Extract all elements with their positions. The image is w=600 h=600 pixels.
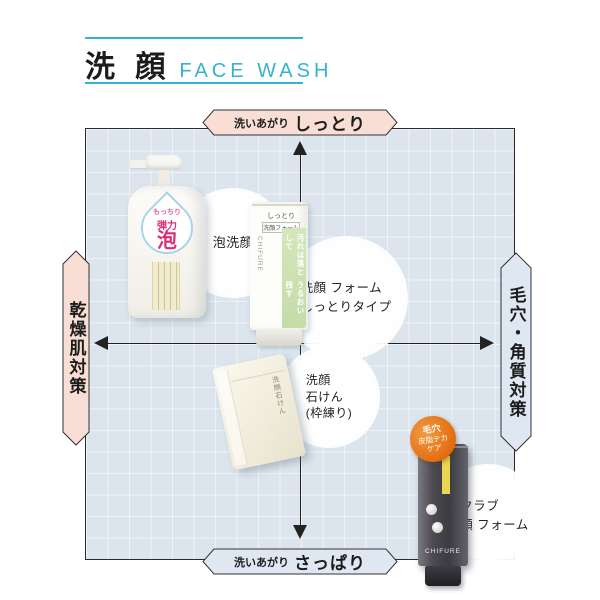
page-title-en: FACE WASH [179, 60, 332, 83]
axis-label-top: 洗いあがり しっとり [202, 109, 398, 136]
drop-label-small: もっちり [153, 207, 181, 217]
annotation-text: 洗顔 フォームしっとりタイプ [300, 279, 391, 317]
page-title: 洗 顔 FACE WASH [85, 42, 332, 86]
tube-top-text: しっとり [254, 211, 308, 221]
axis-label-bottom: 洗いあがり さっぱり [202, 548, 398, 575]
soap-wrapper: 洗顔石けん [212, 353, 306, 470]
brand-text: CHIFURE [256, 236, 263, 272]
header-rule-bottom [85, 82, 303, 84]
axis-label-left-main: 乾燥肌対策 [64, 301, 89, 396]
pump-head [146, 155, 182, 170]
soap-package-text: 洗顔石けん [269, 375, 287, 416]
tube-cap [256, 330, 302, 346]
bottle-info-panel [152, 262, 180, 310]
tube-crimp [252, 204, 310, 206]
annotation-text: 洗顔石けん(枠練り) [306, 372, 353, 422]
axis-label-top-main: しっとり [294, 110, 366, 135]
product-foam-wash-bottle: もっちり 弾力 泡 [116, 150, 216, 325]
axis-arrow-up-icon [293, 141, 307, 155]
product-scrub-tube: CHIFURE 毛穴 皮脂テカ ケア [408, 416, 488, 588]
axis-label-bottom-main: さっぱり [294, 549, 366, 574]
axis-label-right: 毛穴・角質対策 [500, 252, 532, 452]
axis-label-bottom-prefix: 洗いあがり [234, 554, 289, 570]
tube-body: しっとり 洗顔フォーム 汚れは落としてうるおい残す CHIFURE [250, 202, 308, 330]
axis-arrow-down-icon [293, 525, 307, 539]
scrub-bead-icon [426, 504, 437, 515]
axis-label-top-prefix: 洗いあがり [234, 115, 289, 131]
tube-copy-text: 汚れは落としてうるおい残す [282, 234, 306, 322]
tube-green-stripe: 汚れは落としてうるおい残す [282, 228, 306, 328]
brand-text: CHIFURE [418, 548, 468, 555]
product-soap-package: 洗顔石けん [210, 352, 310, 477]
tube-yellow-tag [442, 456, 450, 494]
product-moist-tube: しっとり 洗顔フォーム 汚れは落としてうるおい残す CHIFURE [248, 202, 312, 352]
axis-arrow-left-icon [94, 336, 108, 350]
header-rule-top [85, 37, 303, 39]
page-title-jp: 洗 顔 [85, 42, 171, 86]
scrub-bead-icon [432, 522, 443, 533]
badge-line3: ケア [426, 443, 442, 454]
axis-label-left: 乾燥肌対策 [62, 250, 90, 446]
drop-label-big: 泡 [157, 232, 177, 250]
tube-cap [425, 566, 461, 586]
axis-arrow-right-icon [480, 336, 494, 350]
axis-label-right-main: 毛穴・角質対策 [504, 286, 529, 419]
wrapper-flap [216, 370, 248, 466]
page: 洗 顔 FACE WASH 洗いあがり しっとり 洗いあがり さっぱり [0, 0, 600, 600]
